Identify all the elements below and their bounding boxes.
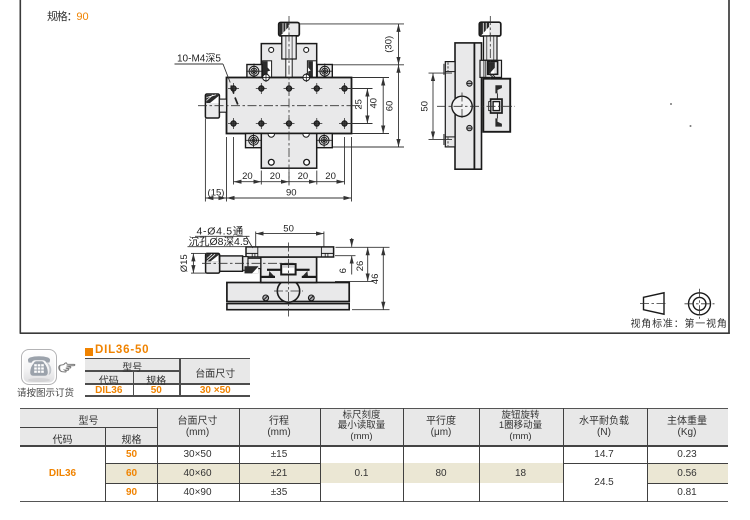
svg-text:Ø15: Ø15 (179, 254, 190, 272)
svg-text:20: 20 (242, 171, 253, 182)
svg-text:50: 50 (283, 223, 294, 234)
svg-text:20: 20 (298, 171, 309, 182)
svg-text:26: 26 (355, 261, 366, 272)
svg-text:50: 50 (420, 101, 431, 112)
svg-text:60: 60 (385, 101, 396, 112)
svg-text:20: 20 (270, 171, 281, 182)
svg-text:20: 20 (325, 171, 336, 182)
svg-text:(30): (30) (384, 36, 395, 53)
svg-text:10-M4深5: 10-M4深5 (177, 53, 221, 65)
svg-text:6: 6 (338, 268, 349, 273)
svg-text:视角标准：第一视角: 视角标准：第一视角 (631, 317, 728, 330)
svg-text:沉孔Ø8深4.5: 沉孔Ø8深4.5 (189, 235, 249, 248)
svg-text:90: 90 (286, 188, 297, 199)
svg-text:46: 46 (370, 274, 381, 285)
svg-text:(15): (15) (208, 188, 225, 199)
svg-text:25: 25 (354, 99, 365, 110)
svg-text:40: 40 (369, 98, 380, 109)
